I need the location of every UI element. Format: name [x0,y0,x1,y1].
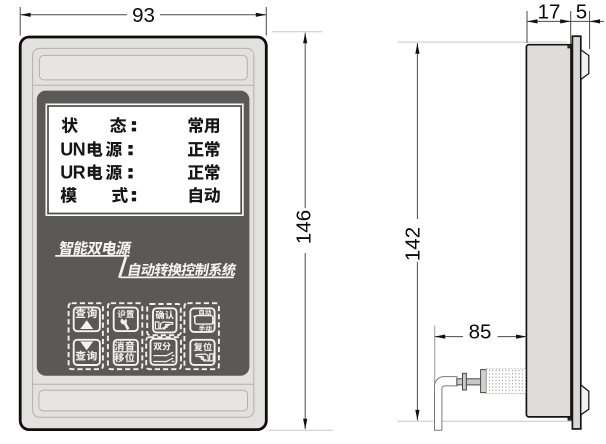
svg-text:5: 5 [576,1,587,24]
svg-text:17: 17 [538,1,561,24]
svg-text:142: 142 [401,227,424,261]
svg-text:UN: UN [60,139,85,159]
svg-text:UR: UR [60,163,85,183]
svg-text:146: 146 [293,210,316,244]
svg-text:93: 93 [132,4,155,27]
svg-text:85: 85 [469,321,492,344]
